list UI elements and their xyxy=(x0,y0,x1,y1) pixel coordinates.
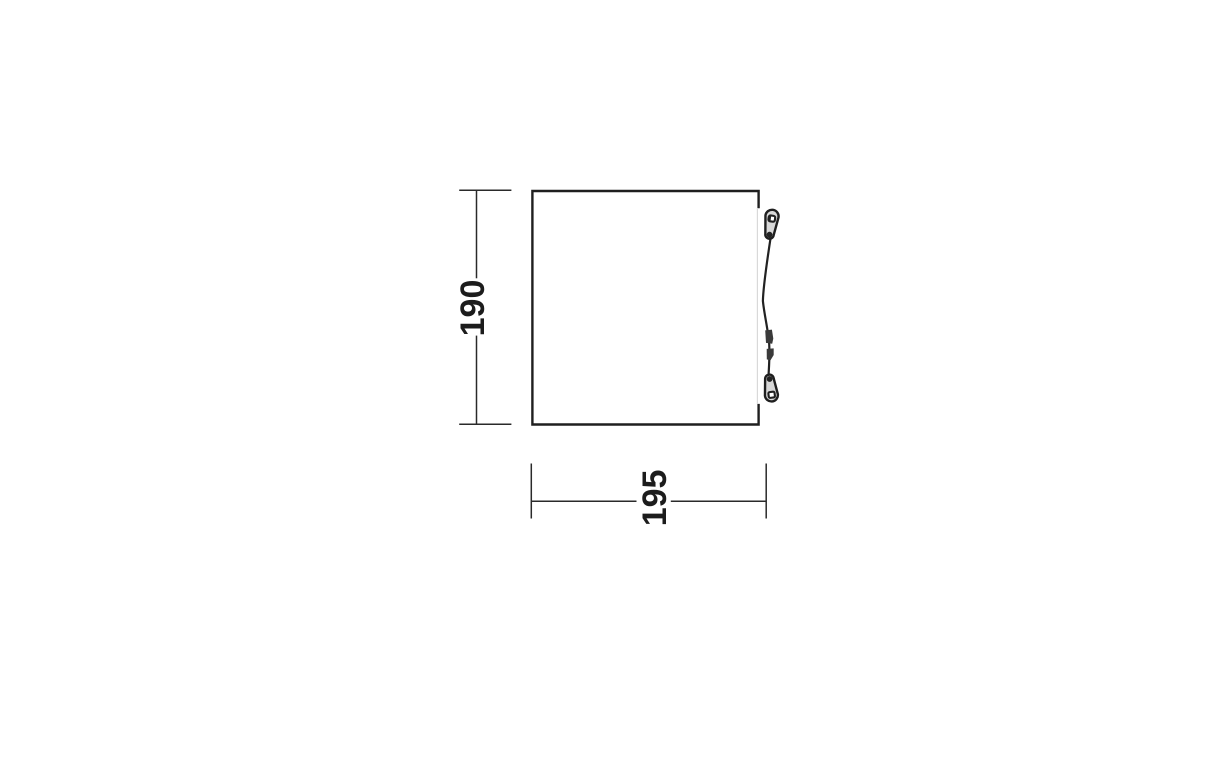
svg-text:195: 195 xyxy=(636,470,674,527)
svg-text:190: 190 xyxy=(454,280,492,337)
